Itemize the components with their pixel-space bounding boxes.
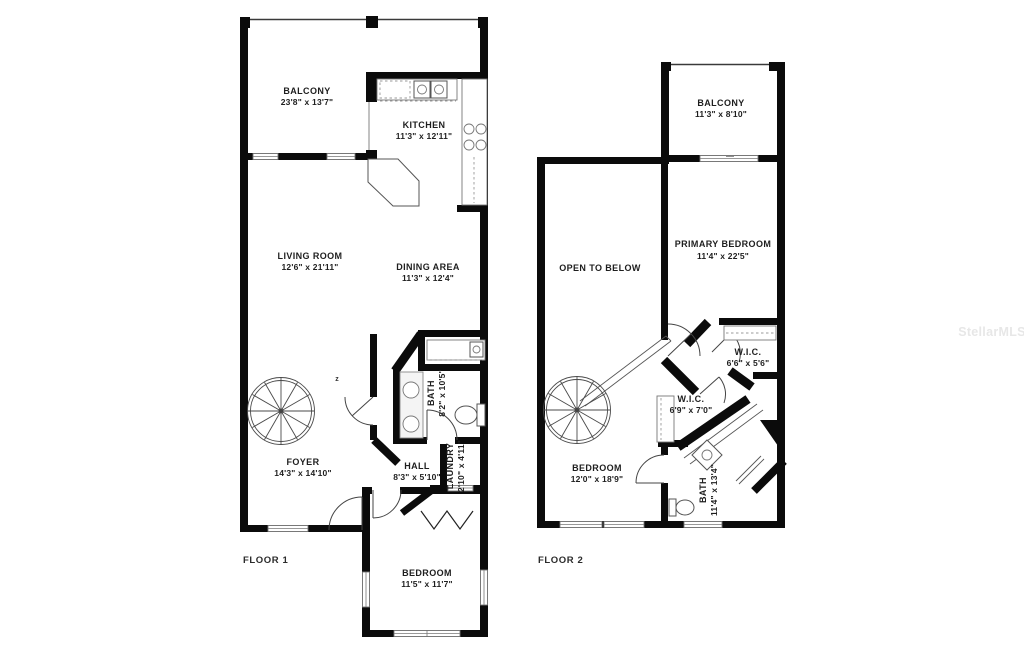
kitchen-fixtures — [368, 79, 487, 206]
closet-bifold-door — [421, 511, 473, 529]
dims-foyer: 14'3" x 14'10" — [274, 468, 331, 478]
floorplan-drawing: BALCONY 23'8" x 13'7" KITCHEN 11'3" x 12… — [0, 0, 1024, 665]
floor2-walls — [537, 62, 785, 528]
label-laundry: LAUNDRY — [445, 443, 455, 489]
floor1-labels: BALCONY 23'8" x 13'7" KITCHEN 11'3" x 12… — [243, 86, 466, 589]
floor1-plan: BALCONY 23'8" x 13'7" KITCHEN 11'3" x 12… — [240, 16, 488, 637]
dims-bath-f2: 11'4" x 13'4" — [709, 464, 719, 516]
dims-laundry: 2'10" x 4'11" — [456, 440, 466, 492]
dims-kitchen: 11'3" x 12'11" — [396, 131, 453, 141]
label-living-room: LIVING ROOM — [278, 251, 343, 261]
label-wic1: W.I.C. — [735, 347, 762, 357]
island — [368, 159, 419, 206]
label-hall: HALL — [404, 461, 430, 471]
dims-bath-f1: 8'2" x 10'5" — [437, 369, 447, 417]
toilet — [669, 499, 694, 516]
window — [327, 154, 355, 160]
label-balcony-f2: BALCONY — [697, 98, 744, 108]
toilet — [455, 404, 485, 426]
label-bedroom-f2: BEDROOM — [572, 463, 622, 473]
window — [268, 526, 308, 532]
window — [684, 522, 722, 528]
wic1-shelf — [724, 326, 776, 340]
dims-balcony-f2: 11'3" x 8'10" — [695, 109, 747, 119]
stair-railing — [580, 336, 671, 406]
wic2-shelf — [657, 396, 674, 442]
window — [394, 631, 460, 637]
bedroom2-door — [636, 455, 664, 483]
dims-wic2: 6'9" x 7'0" — [670, 405, 713, 415]
label-primary-bedroom: PRIMARY BEDROOM — [675, 239, 772, 249]
floor1-walls — [240, 16, 488, 637]
dims-living-room: 12'6" x 21'11" — [282, 262, 339, 272]
dims-primary-bedroom: 11'4" x 22'5" — [697, 251, 749, 261]
bedroom-door — [373, 490, 401, 518]
window — [253, 154, 278, 160]
label-kitchen: KITCHEN — [403, 120, 446, 130]
dims-hall: 8'3" x 5'10" — [393, 472, 441, 482]
dims-wic1: 6'6" x 5'6" — [727, 358, 770, 368]
window — [560, 522, 602, 528]
stellar-mls-watermark: StellarMLS — [958, 325, 1024, 339]
window — [604, 522, 644, 528]
dims-dining-area: 11'3" x 12'4" — [402, 273, 454, 283]
vestibule-door — [345, 397, 373, 425]
label-open-to-below: OPEN TO BELOW — [559, 263, 641, 273]
floor1-title: FLOOR 1 — [243, 555, 288, 566]
label-bath-f2: BATH — [698, 477, 708, 503]
dims-bedroom-f1: 11'5" x 11'7" — [401, 579, 453, 589]
label-bedroom-f1: BEDROOM — [402, 568, 452, 578]
floor2-plan: BALCONY 11'3" x 8'10" OPEN TO BELOW PRIM… — [537, 62, 785, 566]
label-bath-f1: BATH — [426, 380, 436, 406]
label-wic2: W.I.C. — [678, 394, 705, 404]
spiral-staircase-floor1 — [248, 378, 315, 445]
spiral-staircase-floor2 — [544, 377, 611, 444]
nook-counter — [427, 340, 485, 360]
sink — [403, 416, 419, 432]
label-dining-area: DINING AREA — [396, 262, 460, 272]
dims-balcony-f1: 23'8" x 13'7" — [281, 97, 334, 107]
window — [481, 570, 488, 605]
dims-bedroom-f2: 12'0" x 18'9" — [571, 474, 624, 484]
compass-mark: z — [335, 376, 339, 383]
double-sink — [414, 81, 447, 98]
window — [363, 572, 370, 607]
floorplan-page: BALCONY 23'8" x 13'7" KITCHEN 11'3" x 12… — [0, 0, 1024, 665]
balcony-slider-window — [700, 156, 758, 162]
floor2-title: FLOOR 2 — [538, 555, 583, 566]
label-balcony-f1: BALCONY — [283, 86, 330, 96]
sink — [403, 382, 419, 398]
label-foyer: FOYER — [286, 457, 319, 467]
